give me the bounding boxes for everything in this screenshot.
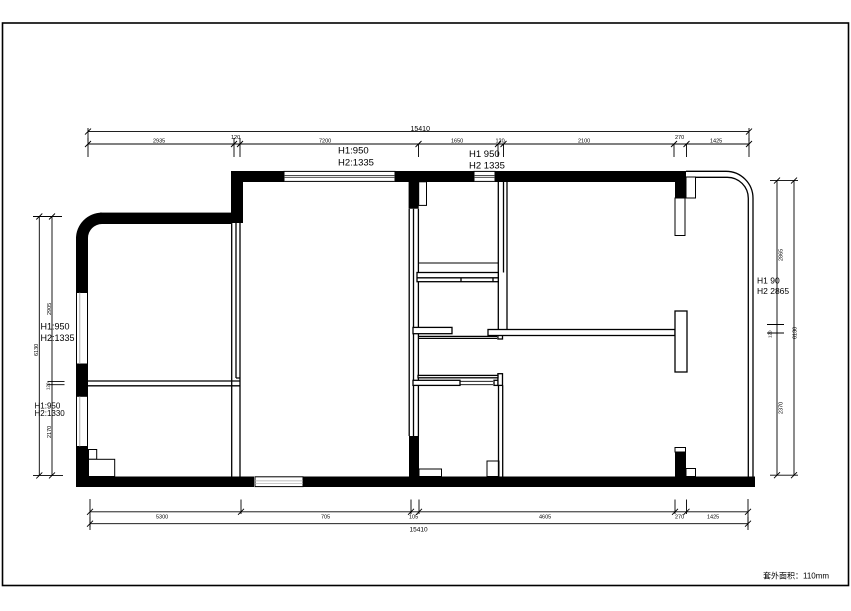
svg-text:2170: 2170 [47, 426, 53, 438]
svg-text:H2:1330: H2:1330 [35, 409, 66, 418]
svg-text:H1 950: H1 950 [469, 149, 500, 160]
svg-text:120: 120 [46, 382, 51, 390]
svg-text:2865: 2865 [779, 249, 785, 261]
svg-text:120: 120 [768, 330, 773, 338]
svg-text:2935: 2935 [153, 139, 165, 145]
svg-text:H2:1335: H2:1335 [338, 158, 374, 169]
svg-text:套外面积：110mm: 套外面积：110mm [763, 571, 829, 581]
svg-text:H1:950: H1:950 [41, 322, 70, 332]
svg-text:H1 90: H1 90 [757, 276, 780, 286]
svg-text:15410: 15410 [410, 527, 428, 534]
svg-text:6130: 6130 [34, 344, 40, 356]
svg-text:6130: 6130 [793, 327, 799, 339]
svg-text:120: 120 [496, 139, 505, 145]
svg-text:2100: 2100 [578, 139, 590, 145]
svg-text:5300: 5300 [156, 515, 168, 521]
svg-text:H2 2865: H2 2865 [757, 286, 789, 296]
svg-text:15410: 15410 [411, 126, 431, 133]
svg-text:1425: 1425 [710, 139, 722, 145]
svg-text:1425: 1425 [707, 515, 719, 521]
svg-text:120: 120 [231, 135, 240, 141]
svg-text:4605: 4605 [539, 515, 551, 521]
svg-text:H2 1335: H2 1335 [469, 161, 505, 172]
svg-text:2370: 2370 [779, 402, 785, 414]
svg-text:270: 270 [675, 515, 684, 521]
svg-text:1650: 1650 [451, 139, 463, 145]
svg-text:270: 270 [675, 135, 684, 141]
svg-text:H2:1335: H2:1335 [41, 333, 75, 343]
svg-text:H1:950: H1:950 [338, 146, 369, 157]
svg-text:2905: 2905 [47, 303, 53, 315]
svg-text:7200: 7200 [319, 139, 331, 145]
svg-text:105: 105 [409, 515, 418, 521]
svg-text:705: 705 [321, 515, 330, 521]
